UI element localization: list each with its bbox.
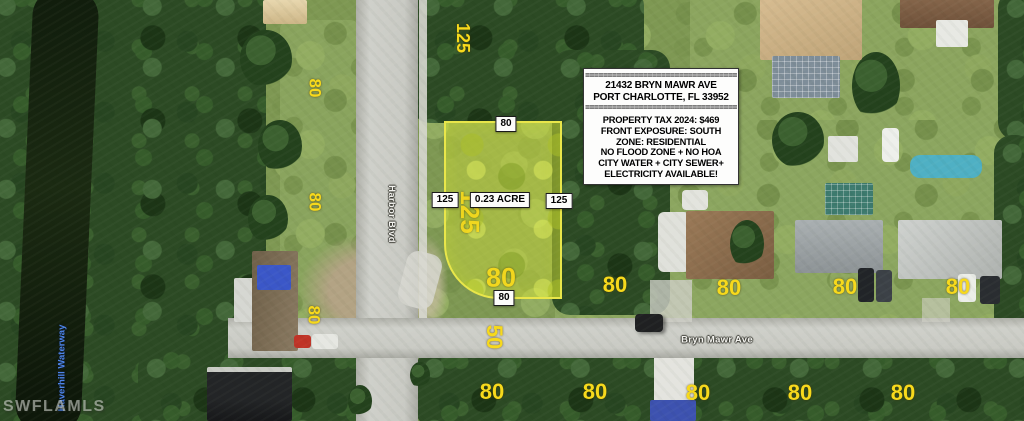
tree-clump	[772, 112, 824, 168]
tree-clump	[240, 30, 292, 88]
house-roof-c	[898, 220, 1002, 279]
info-detail: NO FLOOD ZONE + NO HOA	[585, 147, 737, 158]
lot-dim-label: 80	[833, 276, 857, 298]
boat	[682, 190, 708, 210]
driveway-east	[922, 298, 950, 322]
lot-dim-label: 50	[483, 325, 505, 349]
lot-depth-left-box: 125	[432, 192, 459, 208]
lot-dim-label: 80	[583, 381, 607, 403]
address-line: 21432 BRYN MAWR AVE	[585, 80, 737, 92]
lot-dim-label: 125	[454, 23, 472, 53]
pool-enclosure	[825, 183, 873, 215]
tree-clump	[248, 195, 288, 243]
lot-dim-label: 80	[891, 382, 915, 404]
info-detail: ELECTRICITY AVAILABLE!	[585, 169, 737, 180]
bryn-mawr-road	[228, 318, 1024, 358]
info-detail: CITY WATER + CITY SEWER+	[585, 158, 737, 169]
lot-dim-label: 80	[946, 276, 970, 298]
dark-car	[876, 270, 892, 302]
trees-south-east	[416, 350, 1024, 421]
tree-overhang	[348, 385, 372, 417]
house-roof-dark	[207, 367, 292, 421]
swimming-pool	[910, 155, 982, 178]
aerial-listing-map: 80 125 80 80 125 80 50 80 80 80 80 80 80…	[0, 0, 1024, 421]
white-shed	[828, 136, 858, 162]
house-roof-top-left	[263, 0, 307, 24]
screen-enclosure	[772, 56, 840, 98]
tree-clump	[852, 52, 900, 120]
lot-dim-label: 80	[480, 381, 504, 403]
blue-tarp	[257, 265, 291, 290]
mls-watermark: SWFLAMLS	[3, 398, 106, 416]
house-roof-b	[795, 220, 883, 273]
house-roof-top-right	[760, 0, 862, 60]
info-detail: FRONT EXPOSURE: SOUTH	[585, 126, 737, 137]
lot-dim-label: 80	[306, 306, 323, 325]
white-shed	[936, 20, 968, 47]
address-line: PORT CHARLOTTE, FL 33952	[585, 92, 737, 104]
lot-dim-label: 80	[717, 277, 741, 299]
tree-clump	[258, 120, 302, 172]
white-car	[312, 334, 338, 349]
lot-dim-label: 80	[686, 382, 710, 404]
lot-dim-label: 80	[307, 79, 324, 98]
dark-car	[858, 268, 874, 302]
lot-dim-label: 80	[788, 382, 812, 404]
dark-car	[980, 276, 1000, 304]
car-on-road	[635, 314, 663, 332]
lot-inner-frontage-label: 80	[486, 265, 516, 292]
street-label-harbor-blvd: Harbor Blvd	[386, 185, 396, 243]
white-van	[882, 128, 899, 162]
info-detail: ZONE: RESIDENTIAL	[585, 137, 737, 148]
info-box: ================================== 21432…	[583, 68, 739, 185]
lot-dim-label: 80	[307, 193, 324, 212]
red-car	[294, 335, 311, 348]
lot-frontage-bottom-box: 80	[493, 290, 514, 306]
separator: ==================================	[585, 103, 737, 112]
lot-depth-right-box: 125	[546, 193, 573, 209]
tree-overhang	[410, 362, 430, 388]
lot-dim-label: 80	[603, 274, 627, 296]
street-label-bryn-mawr-ave: Bryn Mawr Ave	[681, 335, 753, 345]
trees-east-edge	[998, 0, 1024, 140]
lot-area-box: 0.23 ACRE	[470, 192, 530, 208]
palm-tree	[730, 220, 764, 268]
separator: ==================================	[585, 71, 737, 80]
lot-frontage-top-box: 80	[495, 116, 516, 132]
info-detail: PROPERTY TAX 2024: $469	[585, 115, 737, 126]
